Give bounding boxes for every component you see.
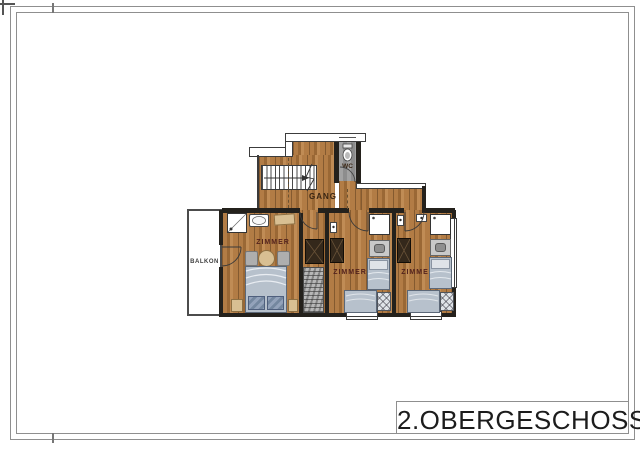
drawing-sheet: 2.OBERGESCHOSS BALKON GANG WC ZIMMER ZIM… xyxy=(0,0,640,452)
shower-room3 xyxy=(430,214,451,235)
balcony-label: BALKON xyxy=(189,259,220,265)
bed-bottom-room2 xyxy=(344,290,377,313)
wc-label: WC xyxy=(339,164,356,171)
table-room1 xyxy=(258,250,275,267)
shelf-room3 xyxy=(416,214,427,222)
sink-room1 xyxy=(249,214,269,227)
left-wall-upper xyxy=(219,210,223,245)
radiator-room2 xyxy=(330,222,337,233)
bed-bottom-room3 xyxy=(407,290,440,313)
rooms-top-wall-2 xyxy=(318,208,349,213)
radiator-room3 xyxy=(397,215,404,226)
rooms-top-wall-3 xyxy=(369,208,404,213)
wardrobe-room2 xyxy=(330,238,344,263)
hallway-left-edge xyxy=(257,155,259,213)
nightstand-left-room1 xyxy=(231,299,243,312)
hallway-floor-upper xyxy=(293,142,335,155)
shower-room1 xyxy=(227,213,247,233)
fold-tick-bottom xyxy=(52,433,54,443)
pillow-bottom-room3 xyxy=(440,292,454,311)
basin-room3 xyxy=(435,243,446,252)
bed-vertical-room2 xyxy=(367,258,390,290)
corner-mark-horizontal xyxy=(0,3,15,5)
fold-tick-top xyxy=(52,3,54,13)
staircase xyxy=(261,165,317,190)
chair-left-room1 xyxy=(245,251,258,266)
title-block: 2.OBERGESCHOSS xyxy=(396,401,629,434)
pillow-bottom-room2 xyxy=(377,292,391,311)
wc-window-line xyxy=(339,137,356,138)
shower-room2 xyxy=(369,214,390,235)
pillow-right-room1 xyxy=(267,296,284,310)
chair-right-room1 xyxy=(277,251,290,266)
wc-floor xyxy=(339,142,356,181)
left-wall-lower xyxy=(219,267,223,317)
sheet-title: 2.OBERGESCHOSS xyxy=(397,405,628,436)
wall-right-of-wc xyxy=(356,183,426,189)
sink-room2 xyxy=(369,240,390,257)
wardrobe-shaft xyxy=(305,239,324,264)
roofline-dash-1 xyxy=(288,158,289,208)
pillow-left-room1 xyxy=(248,296,265,310)
room1-label: ZIMMER xyxy=(243,239,303,246)
nightstand-right-room1 xyxy=(288,299,298,312)
pillow-vertical-room3 xyxy=(431,259,450,269)
wc-wall-right xyxy=(356,142,361,183)
stairwell-hatch xyxy=(303,267,324,313)
room2-label: ZIMMER xyxy=(330,269,370,276)
wc-wall-left xyxy=(334,142,339,183)
divider-room2-room3 xyxy=(392,213,396,313)
hallway-label: GANG xyxy=(303,193,343,201)
wardrobe-room3 xyxy=(397,238,411,263)
divider-shaft-room2 xyxy=(325,213,329,313)
bench-room1 xyxy=(274,213,296,225)
sink-room3 xyxy=(430,239,451,256)
rooms-top-wall-4 xyxy=(422,208,455,213)
basin-room2 xyxy=(374,244,385,253)
pillow-vertical-room2 xyxy=(369,260,388,270)
roofline-dash-2 xyxy=(347,189,348,209)
bed-vertical-room3 xyxy=(429,257,452,289)
